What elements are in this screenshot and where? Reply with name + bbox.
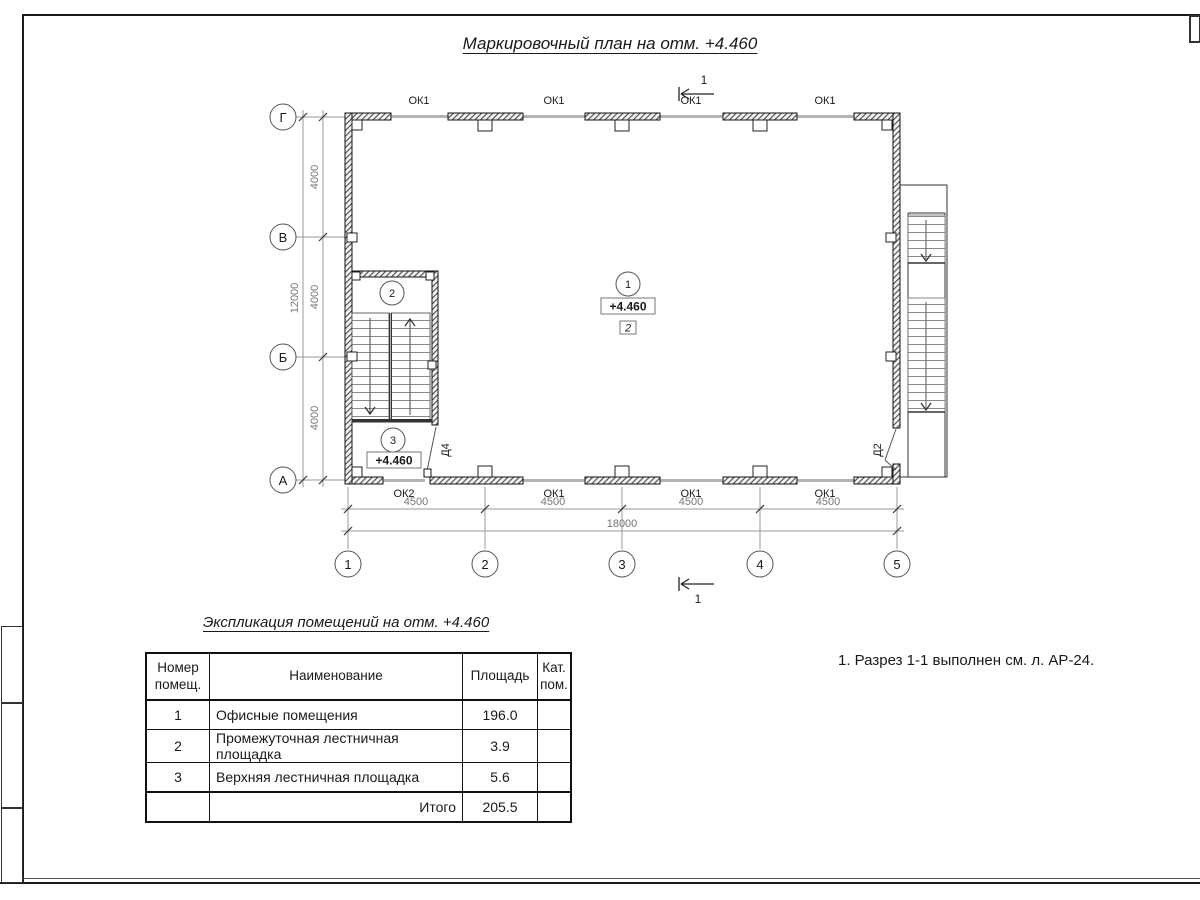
room-cat (538, 700, 572, 730)
table-row: 2 Промежуточная лестничная площадка 3.9 (146, 730, 571, 763)
axis-label-1: 1 (344, 557, 351, 572)
schedule-col-cat: Кат. пом. (538, 653, 572, 700)
room-num: 1 (146, 700, 210, 730)
axis-label-3: 3 (618, 557, 625, 572)
room-cat (538, 763, 572, 793)
door-d2-label: Д2 (872, 443, 884, 457)
table-total-row: Итого 205.5 (146, 792, 571, 822)
schedule-col-num: Номер помещ. (146, 653, 210, 700)
schedule-col-area: Площадь (463, 653, 538, 700)
room-num: 3 (146, 763, 210, 793)
elevation-landing: +4.460 (375, 454, 412, 468)
room-name: Верхняя лестничная площадка (210, 763, 463, 793)
window-label-ok2: ОК2 (393, 488, 414, 500)
external-stair (900, 185, 947, 477)
axis-label-b: Б (279, 350, 288, 365)
room-number-2: 2 (389, 288, 395, 300)
room-name: Промежуточная лестничная площадка (210, 730, 463, 763)
room-area: 5.6 (463, 763, 538, 793)
window-label-ok1: ОК1 (814, 488, 835, 500)
total-cat-empty (538, 792, 572, 822)
axis-label-5: 5 (893, 557, 900, 572)
section-label-bottom: 1 (695, 592, 702, 606)
total-area: 205.5 (463, 792, 538, 822)
room-number-1: 1 (625, 279, 631, 291)
door-d4-label: Д4 (440, 443, 452, 457)
room-area: 3.9 (463, 730, 538, 763)
axis-label-4: 4 (756, 557, 763, 572)
total-empty (146, 792, 210, 822)
window-label-ok1: ОК1 (680, 95, 701, 107)
room-area: 196.0 (463, 700, 538, 730)
window-label-ok1: ОК1 (543, 95, 564, 107)
schedule-title: Экспликация помещений на отм. +4.460 (203, 614, 489, 631)
room-name: Офисные помещения (210, 700, 463, 730)
table-row: 1 Офисные помещения 196.0 (146, 700, 571, 730)
zone-mark: 2 (624, 323, 631, 335)
dim-4000-2: 4000 (309, 285, 321, 309)
window-label-ok1: ОК1 (814, 95, 835, 107)
room-num: 2 (146, 730, 210, 763)
axis-label-g: Г (279, 110, 286, 125)
axis-label-2: 2 (481, 557, 488, 572)
door-d4 (424, 427, 436, 477)
window-label-ok1: ОК1 (408, 95, 429, 107)
elevation-main: +4.460 (609, 300, 646, 314)
window-label-ok1: ОК1 (680, 488, 701, 500)
axis-label-a: А (279, 473, 288, 488)
section-label-top: 1 (701, 73, 708, 87)
section-mark-bottom (679, 577, 714, 591)
drawing-sheet: Маркировочный план на отм. +4.460 (0, 0, 1200, 900)
room-cat (538, 730, 572, 763)
axis-label-v: В (279, 230, 288, 245)
schedule-col-name: Наименование (210, 653, 463, 700)
section-note: 1. Разрез 1-1 выполнен см. л. АР-24. (838, 652, 1094, 669)
total-label: Итого (210, 792, 463, 822)
stair-flights (352, 313, 432, 423)
window-label-ok1: ОК1 (543, 488, 564, 500)
room-number-3: 3 (390, 435, 396, 447)
table-row: 3 Верхняя лестничная площадка 5.6 (146, 763, 571, 793)
dim-12000: 12000 (289, 283, 301, 314)
room-schedule-table: Номер помещ. Наименование Площадь Кат. п… (145, 652, 572, 823)
dim-18000: 18000 (607, 518, 638, 530)
dim-4000-3: 4000 (309, 406, 321, 430)
dim-4000-1: 4000 (309, 165, 321, 189)
